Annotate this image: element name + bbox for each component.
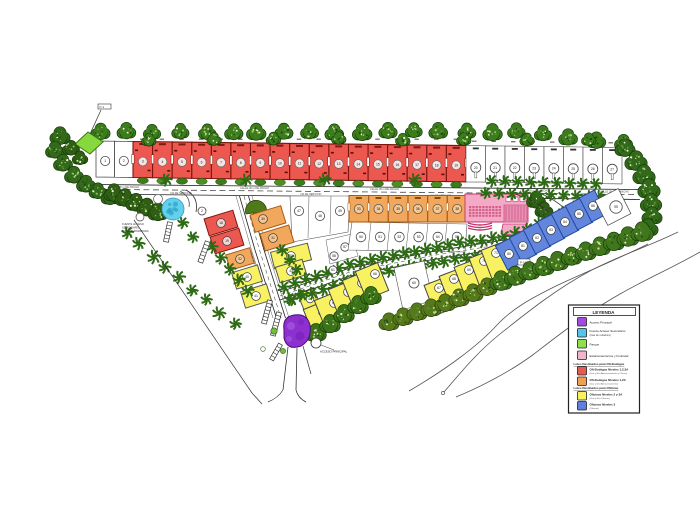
- svg-text:58: 58: [332, 254, 336, 258]
- svg-text:Oficinas Niveles 3: Oficinas Niveles 3: [590, 403, 616, 407]
- svg-text:(Uso y Giro Oficinas): (Uso y Giro Oficinas): [590, 397, 611, 400]
- svg-text:24: 24: [552, 167, 556, 171]
- svg-text:2: 2: [123, 159, 125, 163]
- svg-text:47: 47: [297, 209, 301, 213]
- svg-text:14: 14: [356, 162, 360, 166]
- svg-text:Fuente Acceso Secundario: Fuente Acceso Secundario: [590, 329, 626, 333]
- svg-text:19: 19: [454, 164, 458, 168]
- svg-text:1: 1: [104, 159, 106, 163]
- svg-text:Acceso Principal: Acceso Principal: [590, 321, 613, 325]
- svg-text:27: 27: [610, 167, 614, 171]
- svg-text:5: 5: [181, 160, 183, 164]
- svg-text:82: 82: [535, 236, 539, 240]
- svg-text:3: 3: [142, 160, 144, 164]
- svg-text:(Uso y Giro Almacenamiento y O: (Uso y Giro Almacenamiento y Oficina): [590, 372, 628, 375]
- svg-text:85: 85: [577, 212, 581, 216]
- svg-text:SECUNDARIO: SECUNDARIO: [122, 226, 139, 230]
- svg-text:61: 61: [331, 268, 335, 272]
- svg-text:83: 83: [549, 228, 553, 232]
- svg-text:13: 13: [337, 162, 341, 166]
- svg-text:31: 31: [271, 236, 275, 240]
- svg-text:34: 34: [377, 207, 381, 211]
- svg-text:53: 53: [417, 235, 421, 239]
- svg-text:25: 25: [571, 167, 575, 171]
- svg-text:4: 4: [161, 160, 163, 164]
- svg-text:52: 52: [398, 235, 402, 239]
- svg-text:11: 11: [298, 162, 302, 166]
- svg-text:57: 57: [343, 245, 347, 249]
- svg-text:84: 84: [563, 220, 567, 224]
- svg-text:32: 32: [238, 257, 242, 261]
- svg-text:20: 20: [474, 166, 478, 170]
- svg-text:95: 95: [614, 205, 618, 209]
- svg-text:12: 12: [317, 162, 321, 166]
- svg-text:15: 15: [376, 163, 380, 167]
- svg-text:51: 51: [378, 235, 382, 239]
- svg-text:54: 54: [436, 235, 440, 239]
- svg-text:6: 6: [201, 160, 203, 164]
- svg-text:37: 37: [436, 207, 440, 211]
- svg-text:67: 67: [437, 286, 441, 290]
- svg-text:38: 38: [455, 207, 459, 211]
- svg-text:Estacionamientos y Funicular: Estacionamientos y Funicular: [590, 354, 629, 358]
- svg-text:30: 30: [261, 217, 265, 221]
- svg-text:19: 19: [225, 239, 229, 243]
- svg-text:LOSA DE RODADURA: LOSA DE RODADURA: [122, 229, 149, 233]
- svg-text:21: 21: [493, 166, 497, 170]
- svg-text:49: 49: [338, 209, 342, 213]
- svg-text:50: 50: [359, 235, 363, 239]
- svg-text:P-1: P-1: [100, 105, 105, 109]
- svg-text:10: 10: [278, 161, 282, 165]
- svg-text:18: 18: [219, 221, 223, 225]
- svg-text:80: 80: [507, 252, 511, 256]
- svg-text:33: 33: [357, 207, 361, 211]
- svg-text:Parque: Parque: [590, 343, 600, 347]
- svg-text:ACCESO PRINCIPAL: ACCESO PRINCIPAL: [320, 350, 348, 354]
- svg-text:Ofi-Bodegas Niveles 1,2,3A: Ofi-Bodegas Niveles 1,2,3A: [590, 368, 630, 372]
- svg-text:69: 69: [467, 268, 471, 272]
- svg-text:71: 71: [494, 251, 498, 255]
- svg-text:Lotes Destinados para Oficinas: Lotes Destinados para Oficinas: [574, 386, 619, 390]
- svg-text:Lotes Destinados para Ofi-Bode: Lotes Destinados para Ofi-Bodegas: [574, 362, 625, 366]
- svg-text:16: 16: [396, 163, 400, 167]
- svg-text:CALLE 30 m DE ANCHO: CALLE 30 m DE ANCHO: [240, 186, 269, 190]
- svg-text:48: 48: [318, 214, 322, 218]
- svg-text:36: 36: [416, 207, 420, 211]
- svg-text:9: 9: [259, 161, 261, 165]
- svg-text:68: 68: [452, 277, 456, 281]
- svg-text:81: 81: [521, 244, 525, 248]
- svg-text:7: 7: [220, 161, 222, 165]
- svg-text:(Oficinas): (Oficinas): [590, 408, 600, 410]
- svg-text:2: 2: [201, 209, 203, 213]
- svg-text:35: 35: [396, 207, 400, 211]
- svg-text:VIA DE SERVICIO: VIA DE SERVICIO: [300, 192, 321, 196]
- svg-text:FUENTE ACCESO: FUENTE ACCESO: [122, 222, 144, 226]
- svg-text:(losa de rodadura): (losa de rodadura): [590, 333, 611, 337]
- svg-text:8: 8: [240, 161, 242, 165]
- svg-text:Ofi-Bodegas Niveles 1,2A: Ofi-Bodegas Niveles 1,2A: [590, 378, 627, 382]
- svg-text:66: 66: [373, 272, 377, 276]
- svg-text:26: 26: [591, 167, 595, 171]
- svg-text:23: 23: [532, 167, 536, 171]
- svg-text:86: 86: [591, 204, 595, 208]
- svg-text:Oficinas Niveles 2 y 3A: Oficinas Niveles 2 y 3A: [590, 393, 624, 397]
- svg-text:17: 17: [415, 163, 419, 167]
- svg-text:CALLE 30 m DE ANCHO: CALLE 30 m DE ANCHO: [370, 187, 399, 191]
- svg-text:18: 18: [435, 163, 439, 167]
- svg-text:LEYENDA: LEYENDA: [593, 310, 616, 315]
- svg-text:22: 22: [513, 166, 517, 170]
- svg-text:41: 41: [254, 294, 258, 298]
- svg-text:60: 60: [412, 281, 416, 285]
